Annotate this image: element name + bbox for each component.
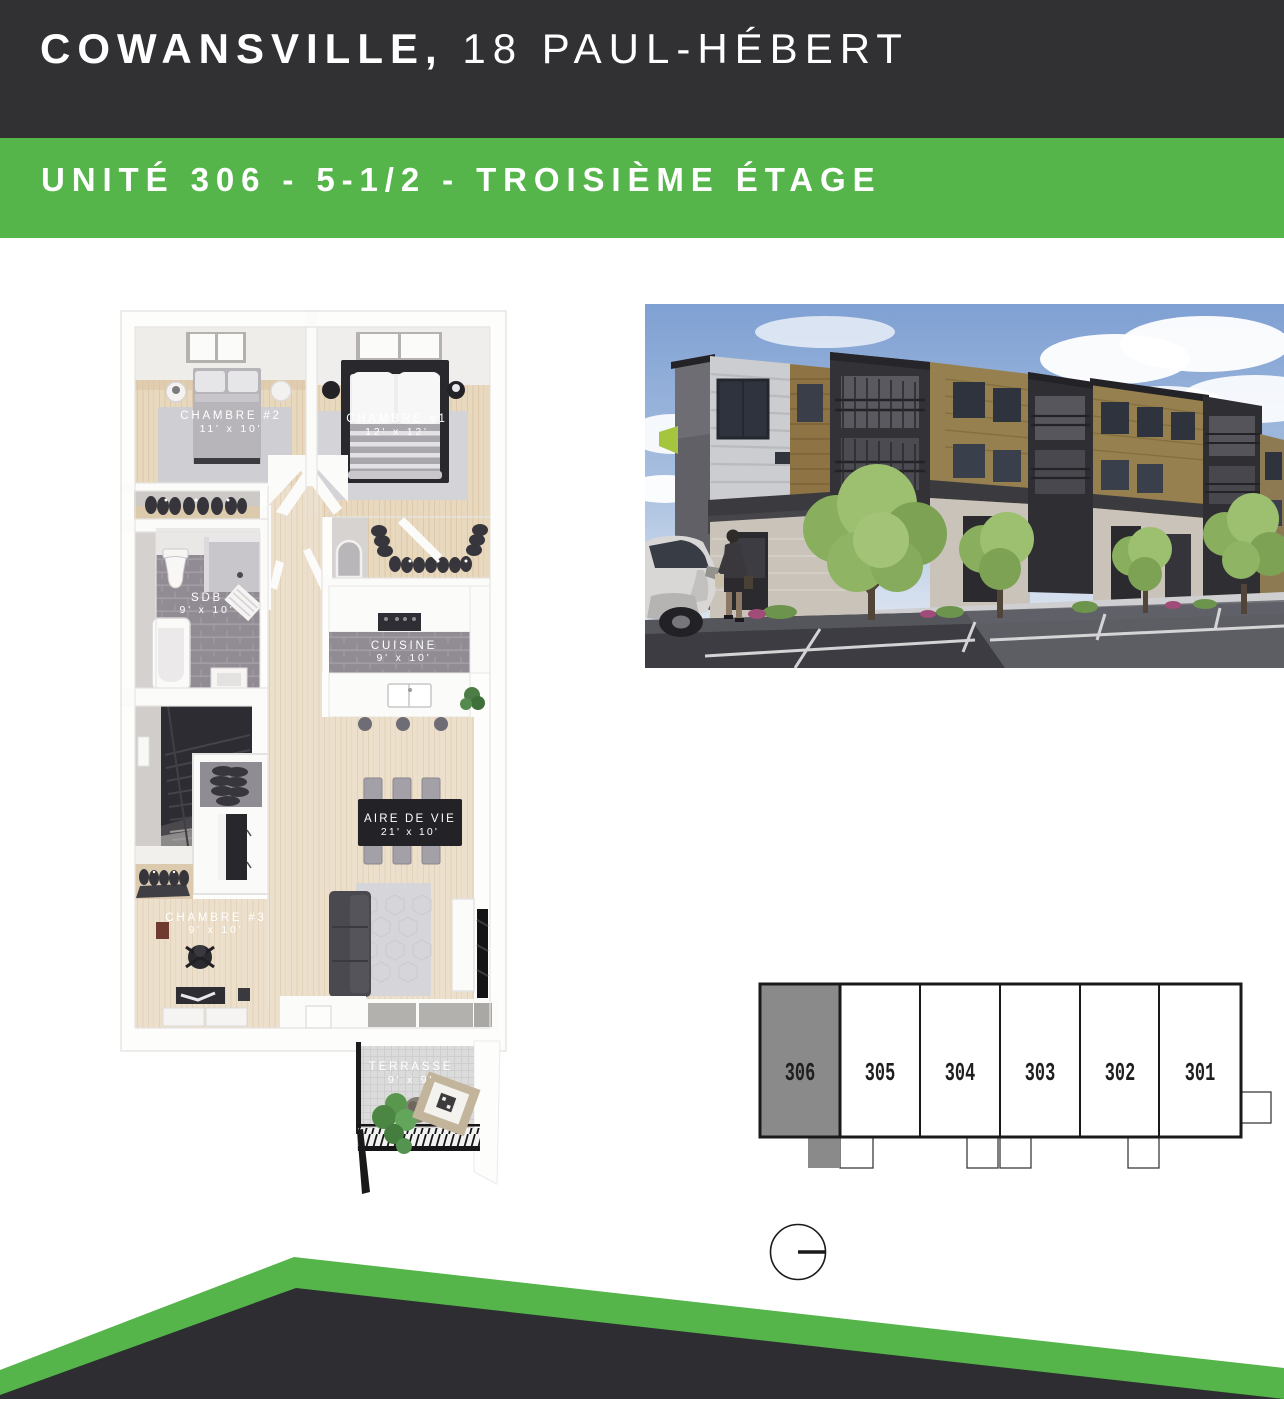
svg-text:11' x 10': 11' x 10' [200,423,263,435]
svg-text:CUISINE: CUISINE [371,640,437,652]
svg-text:301: 301 [1185,1059,1215,1089]
svg-text:SDB: SDB [191,592,223,604]
svg-text:306: 306 [785,1059,815,1089]
svg-text:CHAMBRE #3: CHAMBRE #3 [165,912,267,924]
svg-text:304: 304 [945,1059,975,1089]
svg-text:CHAMBRE #1: CHAMBRE #1 [346,413,448,425]
svg-text:21' x 10': 21' x 10' [381,826,439,838]
svg-text:9' x 10': 9' x 10' [179,604,234,616]
svg-text:303: 303 [1025,1059,1055,1089]
svg-text:305: 305 [865,1059,895,1089]
svg-text:AIRE DE VIE: AIRE DE VIE [364,813,456,825]
svg-text:9' x 10': 9' x 10' [376,652,431,664]
svg-text:9' x 9': 9' x 9' [388,1074,434,1086]
svg-text:9' x 10': 9' x 10' [188,924,243,936]
svg-text:302: 302 [1105,1059,1135,1089]
svg-text:TERRASSE: TERRASSE [369,1061,453,1073]
svg-text:12' x 12': 12' x 12' [365,426,429,438]
svg-text:CHAMBRE #2: CHAMBRE #2 [180,410,282,422]
